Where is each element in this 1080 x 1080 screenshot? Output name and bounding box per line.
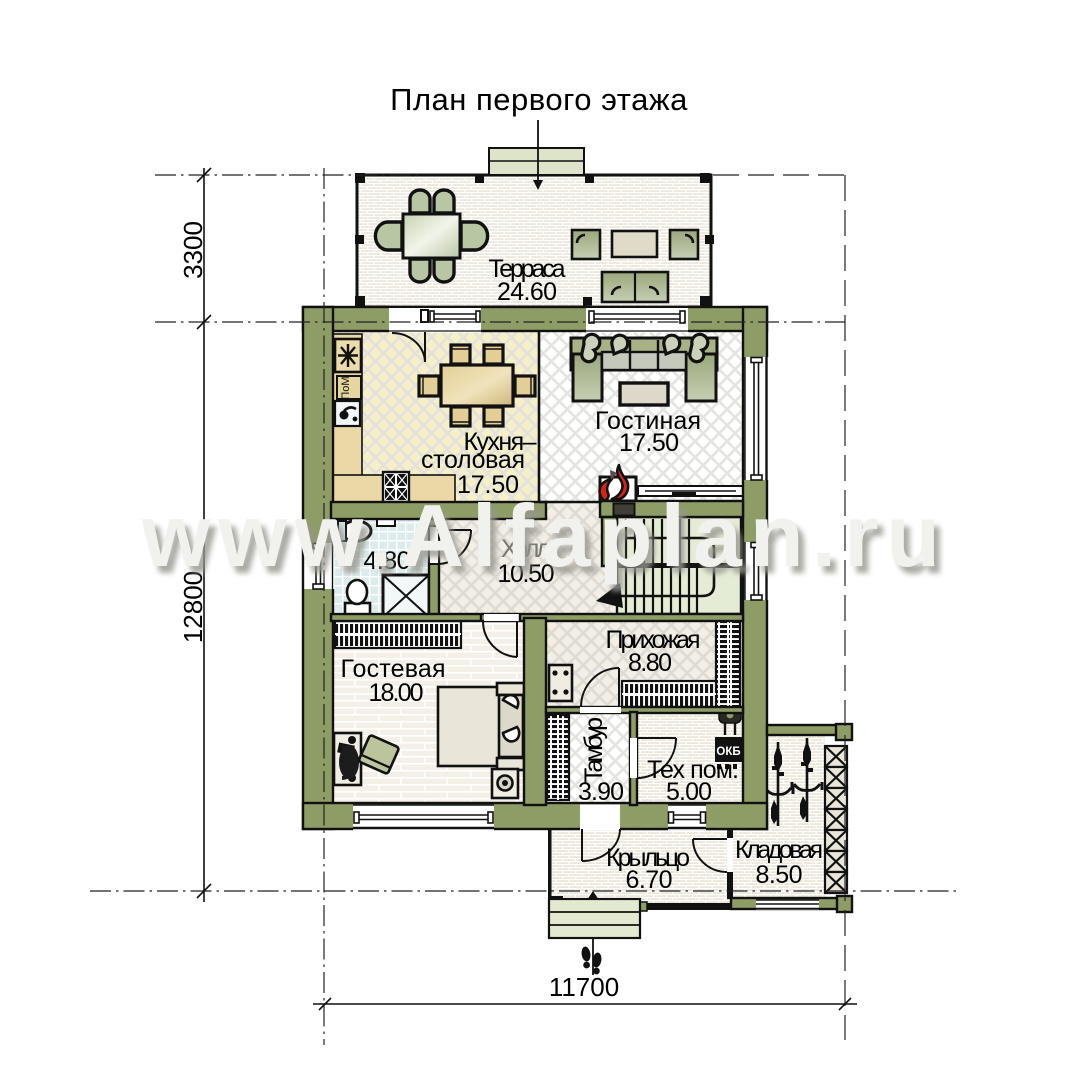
svg-text:3.90: 3.90 bbox=[578, 778, 624, 806]
svg-text:11700: 11700 bbox=[549, 972, 619, 1002]
svg-text:План первого этажа: План первого этажа bbox=[390, 82, 688, 117]
svg-text:6.70: 6.70 bbox=[626, 866, 673, 894]
svg-text:24.60: 24.60 bbox=[497, 278, 557, 306]
svg-text:Тамбур: Тамбур bbox=[580, 717, 608, 783]
svg-text:Кладовая: Кладовая bbox=[735, 836, 823, 864]
svg-text:столовая: столовая bbox=[421, 446, 525, 474]
svg-text:8.50: 8.50 bbox=[756, 861, 803, 889]
svg-text:3300: 3300 bbox=[178, 221, 208, 279]
svg-text:5.00: 5.00 bbox=[666, 778, 712, 806]
svg-text:www.Alfaplan.ru: www.Alfaplan.ru bbox=[141, 486, 948, 585]
svg-text:ПоМ: ПоМ bbox=[340, 376, 352, 399]
svg-text:17.50: 17.50 bbox=[619, 429, 679, 457]
svg-text:8.80: 8.80 bbox=[628, 649, 672, 677]
svg-text:18.00: 18.00 bbox=[369, 679, 424, 707]
